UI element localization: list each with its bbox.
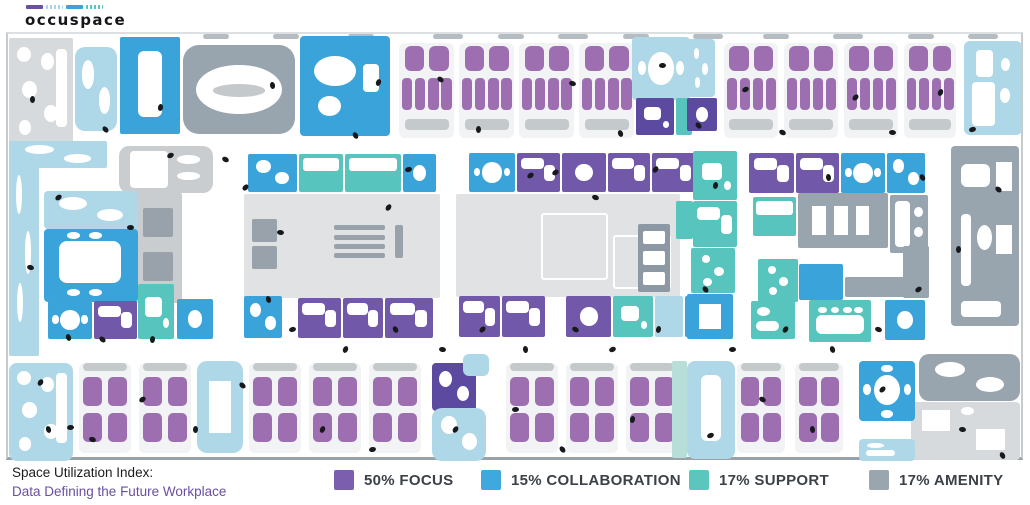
person-dot (342, 345, 349, 353)
legend-item-collaboration: 15% COLLABORATION (481, 470, 681, 490)
room-mint (672, 361, 687, 458)
room-collab-blob1 (885, 300, 925, 340)
room-lounge-blobs2 (9, 141, 107, 168)
legend-swatch-amenity (869, 470, 889, 490)
person-dot (608, 346, 616, 353)
room-focus-desk (796, 153, 839, 193)
room-support-mini (693, 151, 737, 200)
logo-bar-focus (26, 5, 43, 9)
room-pods-pods-v (795, 363, 843, 453)
room-open-stairs (244, 194, 440, 298)
room-lounge-bench (859, 439, 915, 461)
room-collab-blobs2 (887, 153, 925, 193)
legend-footer: Space Utilization Index: Data Defining t… (0, 462, 1030, 505)
room-pods-pods-h (459, 43, 514, 138)
room-lounge-table-v (687, 361, 735, 459)
legend-item-amenity: 17% AMENITY (869, 470, 1003, 490)
logo-bar-lounge (46, 5, 63, 9)
room-collab-round-table (469, 153, 515, 192)
room-pods-pods-h (724, 43, 778, 138)
floor-plan (6, 32, 1023, 460)
room-focus-desk (608, 153, 650, 192)
room-amenity-diag-tables (798, 193, 888, 248)
room-pods-pods-v (309, 363, 361, 453)
person-dot (729, 347, 736, 352)
room-pods-pods-h (784, 43, 838, 138)
person-dot (476, 126, 481, 133)
room-support-scallop (809, 300, 871, 342)
room-collab-round-table (841, 153, 885, 193)
room-collab-blob1 (177, 299, 213, 339)
person-dot (221, 156, 230, 164)
person-dot (150, 336, 155, 343)
room-wall (273, 34, 299, 39)
room-support-bench (751, 301, 795, 339)
logo-bars (26, 5, 126, 9)
room-focus_dark-mini (636, 98, 674, 135)
room-lounge-dots-white (9, 141, 39, 356)
room-amenity-oval-ring (183, 45, 295, 134)
room-wall (908, 34, 934, 39)
legend-swatch-focus (334, 470, 354, 490)
room-focus-desk (298, 298, 341, 338)
legend-label-focus: 50% FOCUS (364, 472, 453, 489)
room-pods-pods-v (626, 363, 678, 453)
caption-subtitle: Data Defining the Future Workplace (12, 483, 226, 502)
room-support-panel (753, 197, 796, 236)
caption-title: Space Utilization Index: (12, 464, 226, 483)
room-lounge-blobs2 (432, 408, 486, 461)
room-wall (763, 34, 789, 39)
room-support-dots-white (691, 248, 735, 293)
person-dot (30, 96, 35, 103)
room-support-dots-white (758, 259, 798, 302)
room-wall (498, 34, 524, 39)
room-palegray-blobs-many (9, 38, 73, 146)
room-amenity-cafe-tables (951, 146, 1019, 326)
person-dot (439, 347, 447, 353)
room-lounge (463, 354, 489, 376)
person-dot (874, 326, 882, 333)
legend-item-focus: 50% FOCUS (334, 470, 453, 490)
room-pods-pods-v (79, 363, 131, 453)
room-collab-blobs2 (248, 154, 297, 192)
room-focus-blob1 (562, 153, 606, 192)
room-collab-conf-large (44, 229, 138, 302)
room-amenity-blobs2 (919, 354, 1020, 401)
room-lounge-kitchen (964, 41, 1022, 135)
person-dot (127, 225, 134, 230)
room-pods-pods-h (579, 43, 634, 138)
person-dot (67, 425, 74, 431)
room-wall (833, 34, 863, 39)
person-dot (829, 345, 836, 353)
room-lounge-blobs2 (75, 47, 117, 131)
room-focus-desk (502, 296, 545, 337)
room-collab-round-table (48, 301, 92, 339)
occuspace-logo: occuspace (25, 5, 126, 29)
room-focus-desk (94, 301, 137, 339)
legend-label-support: 17% SUPPORT (719, 472, 829, 489)
room-collab (799, 264, 843, 300)
room-lounge-round-table (632, 37, 690, 100)
room-wall (433, 34, 463, 39)
room-support-desk (693, 201, 737, 247)
room-pods-pods-h (519, 43, 574, 138)
room-pods-pods-h (399, 43, 454, 138)
room-pods-pods-v (249, 363, 301, 453)
room-support-mini (138, 284, 174, 339)
legend-label-amenity: 17% AMENITY (899, 472, 1003, 489)
room-lounge-x-table (197, 361, 243, 453)
room-wall (968, 34, 998, 39)
room-focus-desk (652, 153, 696, 192)
logo-bar-collaboration (66, 5, 83, 9)
room-support-panel (345, 154, 401, 192)
room-collab-table-v (120, 37, 180, 134)
room-focus-desk (749, 153, 794, 193)
room-lounge-dots-white (687, 39, 715, 97)
room-wall (203, 34, 229, 39)
room-pods-pods-v (369, 363, 421, 453)
room-collab-blobs2 (244, 296, 282, 338)
room-collab-x-table (687, 294, 733, 339)
room-focus-desk (385, 298, 433, 338)
legend-item-support: 17% SUPPORT (689, 470, 829, 490)
logo-bar-support (86, 5, 103, 9)
room-collab-lounge-mix (300, 36, 390, 136)
room-amenity_dark-stalls (638, 224, 670, 292)
legend-label-collaboration: 15% COLLABORATION (511, 472, 681, 489)
room-lounge-blobs-many (9, 363, 73, 461)
room-collab-blob1 (403, 154, 436, 192)
room-pods-pods-h (844, 43, 898, 138)
room-collab-round-chairs (859, 361, 915, 421)
caption: Space Utilization Index: Data Defining t… (12, 464, 226, 502)
room-support-mini (613, 296, 653, 337)
room-core-counter (119, 146, 213, 193)
legend-swatch-collaboration (481, 470, 501, 490)
logo-wordmark: occuspace (25, 11, 126, 29)
person-dot (523, 346, 529, 354)
person-dot (289, 326, 297, 332)
room-amenity-counter (890, 195, 928, 253)
room-support-panel (299, 154, 343, 192)
room-support (676, 201, 693, 239)
room-pods-pods-v (139, 363, 191, 453)
room-pods-pods-h (904, 43, 956, 138)
room-pods-pods-v (566, 363, 618, 453)
room-focus_dark-blob1 (687, 98, 717, 131)
room-focus-desk (343, 298, 383, 338)
legend-swatch-support (689, 470, 709, 490)
room-pods-pods-v (737, 363, 785, 453)
room-wall (558, 34, 588, 39)
